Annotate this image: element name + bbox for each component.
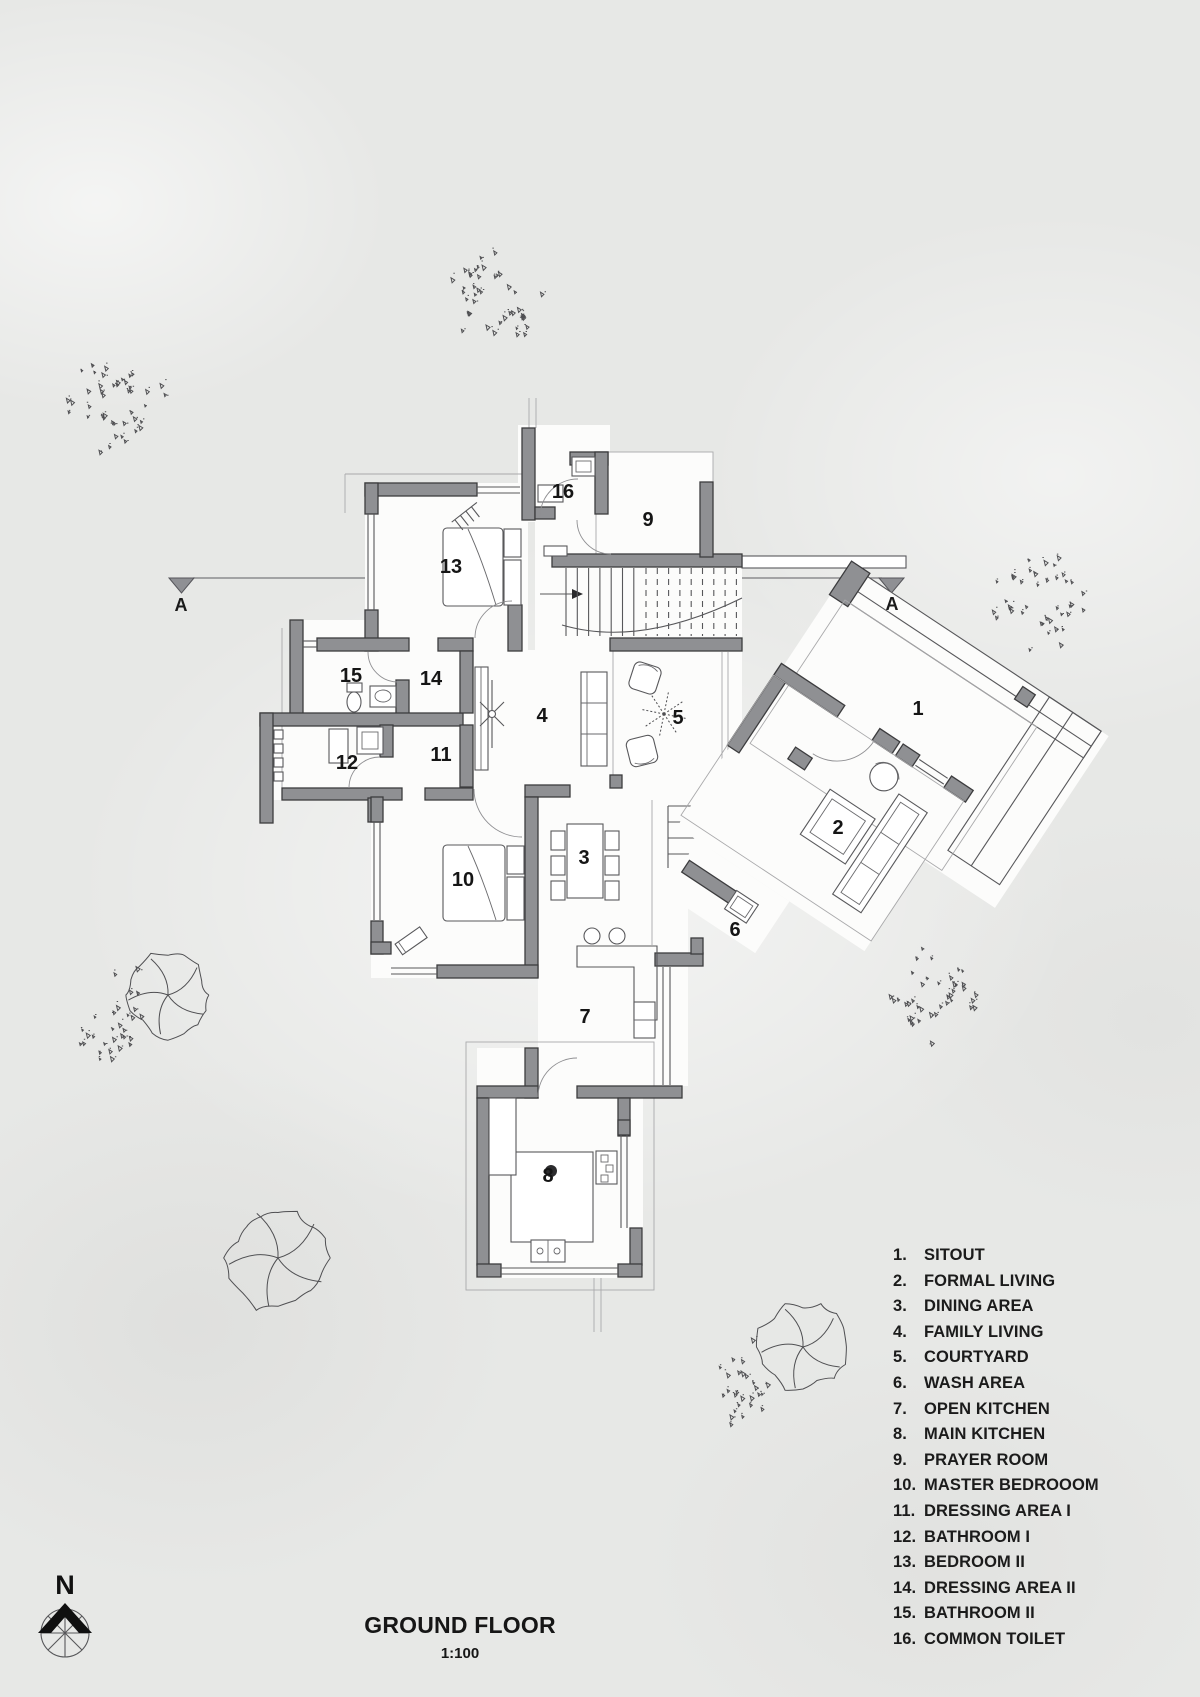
legend-item-label: PRAYER ROOM bbox=[924, 1448, 1048, 1474]
legend-item: 10.MASTER BEDROOOM bbox=[893, 1473, 1183, 1499]
tree bbox=[224, 1211, 331, 1310]
room-number-label: 6 bbox=[729, 919, 740, 941]
room-number-label: 11 bbox=[430, 744, 451, 766]
room-number-label: 15 bbox=[340, 665, 362, 687]
legend-item-label: BATHROOM II bbox=[924, 1601, 1035, 1627]
legend-item-number: 5. bbox=[893, 1345, 924, 1371]
room-number-label: 7 bbox=[579, 1006, 590, 1028]
legend-item-number: 16. bbox=[893, 1627, 924, 1653]
shrub-dots bbox=[451, 248, 546, 337]
legend-item-number: 8. bbox=[893, 1422, 924, 1448]
room-number-label: 3 bbox=[578, 847, 589, 869]
legend-item: 15.BATHROOM II bbox=[893, 1601, 1183, 1627]
legend-item-label: MASTER BEDROOOM bbox=[924, 1473, 1099, 1499]
legend-item-number: 11. bbox=[893, 1499, 924, 1525]
entry-canopy bbox=[742, 556, 906, 568]
kitchen-cabinet bbox=[489, 1098, 516, 1175]
room-number-label: 4 bbox=[536, 705, 548, 727]
legend-item-label: FAMILY LIVING bbox=[924, 1320, 1044, 1346]
room-number-label: 8 bbox=[542, 1165, 553, 1187]
shrub-dots bbox=[889, 948, 978, 1047]
room-number-label: 1 bbox=[912, 698, 923, 720]
section-label-left: A bbox=[175, 595, 188, 615]
legend-item-label: WASH AREA bbox=[924, 1371, 1025, 1397]
legend-item-number: 10. bbox=[893, 1473, 924, 1499]
room-number-label: 13 bbox=[440, 556, 462, 578]
room-number-label: 14 bbox=[420, 668, 443, 690]
room-number-label: 2 bbox=[832, 817, 843, 839]
legend-item-label: SITOUT bbox=[924, 1243, 985, 1269]
legend-item: 3.DINING AREA bbox=[893, 1294, 1183, 1320]
sheet-title: GROUND FLOOR bbox=[364, 1612, 556, 1638]
legend-item: 13.BEDROOM II bbox=[893, 1550, 1183, 1576]
shrub-dots bbox=[992, 554, 1087, 651]
legend-item: 9.PRAYER ROOM bbox=[893, 1448, 1183, 1474]
shrub-dots bbox=[719, 1337, 770, 1427]
legend-item-number: 12. bbox=[893, 1525, 924, 1551]
stove bbox=[596, 1151, 617, 1184]
legend-item-label: BATHROOM I bbox=[924, 1525, 1030, 1551]
section-marker-left bbox=[169, 578, 194, 593]
legend-item-label: DRESSING AREA II bbox=[924, 1576, 1076, 1602]
legend-item-number: 15. bbox=[893, 1601, 924, 1627]
legend-item-number: 9. bbox=[893, 1448, 924, 1474]
room-number-label: 12 bbox=[336, 752, 358, 774]
legend-item: 4.FAMILY LIVING bbox=[893, 1320, 1183, 1346]
tv-unit bbox=[475, 667, 488, 770]
legend-item: 14.DRESSING AREA II bbox=[893, 1576, 1183, 1602]
legend-item-label: COMMON TOILET bbox=[924, 1627, 1065, 1653]
legend-item-number: 14. bbox=[893, 1576, 924, 1602]
legend-item-label: COURTYARD bbox=[924, 1345, 1029, 1371]
legend-item: 1.SITOUT bbox=[893, 1243, 1183, 1269]
legend-item: 5.COURTYARD bbox=[893, 1345, 1183, 1371]
tree bbox=[126, 953, 209, 1040]
legend-item-label: BEDROOM II bbox=[924, 1550, 1025, 1576]
room-number-label: 10 bbox=[452, 869, 474, 891]
legend-item-number: 2. bbox=[893, 1269, 924, 1295]
legend-item-number: 3. bbox=[893, 1294, 924, 1320]
legend-item-number: 1. bbox=[893, 1243, 924, 1269]
legend-item-label: OPEN KITCHEN bbox=[924, 1397, 1050, 1423]
legend-item: 6.WASH AREA bbox=[893, 1371, 1183, 1397]
legend-item-label: DRESSING AREA I bbox=[924, 1499, 1071, 1525]
room-number-label: 16 bbox=[552, 481, 574, 503]
legend-item: 2.FORMAL LIVING bbox=[893, 1269, 1183, 1295]
legend-item: 11.DRESSING AREA I bbox=[893, 1499, 1183, 1525]
legend-item: 8.MAIN KITCHEN bbox=[893, 1422, 1183, 1448]
sheet-scale: 1:100 bbox=[441, 1645, 479, 1662]
legend-item: 12.BATHROOM I bbox=[893, 1525, 1183, 1551]
legend-item-number: 13. bbox=[893, 1550, 924, 1576]
floor-plan-sheet: 12345678910111213141516 A A N GROUND FLO… bbox=[0, 0, 1200, 1697]
title-block: GROUND FLOOR 1:100 bbox=[364, 1612, 556, 1662]
legend-item-label: DINING AREA bbox=[924, 1294, 1034, 1320]
section-label-right: A bbox=[886, 594, 899, 614]
legend-item-number: 4. bbox=[893, 1320, 924, 1346]
legend-item: 7.OPEN KITCHEN bbox=[893, 1397, 1183, 1423]
shrub-dots bbox=[66, 363, 168, 455]
legend-item-label: FORMAL LIVING bbox=[924, 1269, 1055, 1295]
legend-item-number: 7. bbox=[893, 1397, 924, 1423]
room-number-label: 5 bbox=[672, 707, 683, 729]
north-label: N bbox=[55, 1570, 75, 1600]
legend-item-label: MAIN KITCHEN bbox=[924, 1422, 1045, 1448]
north-arrow: N bbox=[38, 1570, 92, 1657]
legend: 1.SITOUT2.FORMAL LIVING3.DINING AREA4.FA… bbox=[893, 1243, 1183, 1653]
legend-item-number: 6. bbox=[893, 1371, 924, 1397]
room-number-label: 9 bbox=[642, 509, 653, 531]
legend-item: 16.COMMON TOILET bbox=[893, 1627, 1183, 1653]
tree bbox=[756, 1304, 846, 1391]
